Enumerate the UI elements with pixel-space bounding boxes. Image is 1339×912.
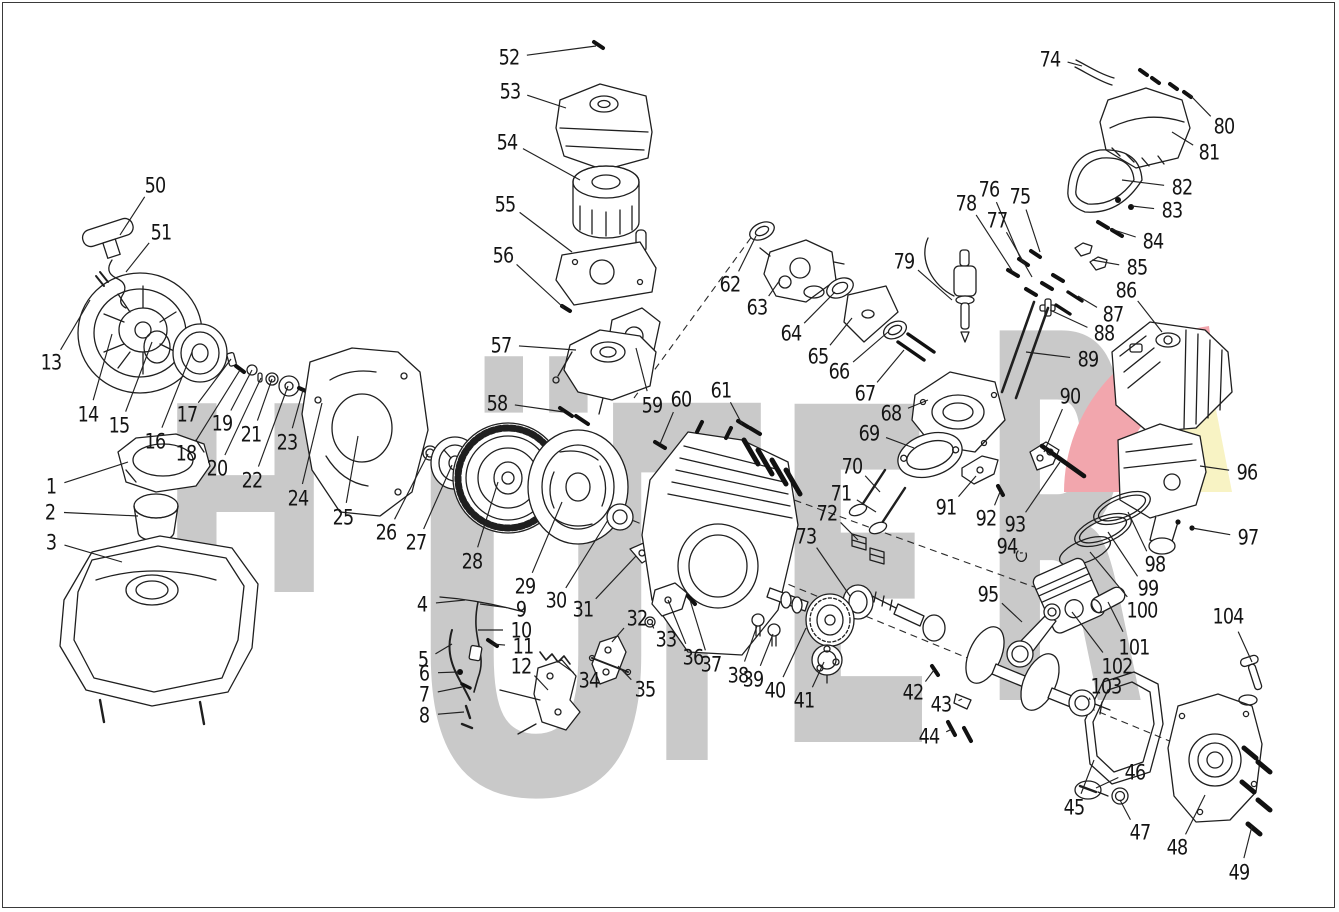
part-callout-47: 47 xyxy=(1130,819,1151,844)
fuel-tank xyxy=(60,536,258,724)
part-callout-82: 82 xyxy=(1172,174,1193,199)
part-callout-91: 91 xyxy=(936,494,957,519)
part-callout-88: 88 xyxy=(1094,320,1115,345)
seal-47 xyxy=(1112,788,1128,804)
part-callout-28: 28 xyxy=(462,548,483,573)
leader-line-6 xyxy=(438,672,458,673)
part-callout-33: 33 xyxy=(656,626,677,651)
part-callout-83: 83 xyxy=(1162,197,1183,222)
crankcase-cover xyxy=(1168,694,1262,822)
part-callout-18: 18 xyxy=(176,440,197,465)
leader-line-49 xyxy=(1244,826,1252,858)
dipstick-ring xyxy=(1239,695,1257,705)
part-callout-17: 17 xyxy=(177,401,198,426)
leader-line-52 xyxy=(527,46,596,55)
part-callout-80: 80 xyxy=(1214,113,1235,138)
air-filter-screw xyxy=(594,42,603,48)
part-callout-15: 15 xyxy=(109,412,130,437)
part-callout-27: 27 xyxy=(406,529,427,554)
part-callout-94: 94 xyxy=(997,533,1018,558)
leader-line-1 xyxy=(64,462,128,483)
part-callout-52: 52 xyxy=(499,44,520,69)
part-callout-46: 46 xyxy=(1125,759,1146,784)
leader-line-55 xyxy=(520,212,572,252)
part-callout-73: 73 xyxy=(796,523,817,548)
part-callout-4: 4 xyxy=(417,591,427,616)
part-callout-75: 75 xyxy=(1010,183,1031,208)
part-callout-54: 54 xyxy=(497,129,518,154)
parts-diagram-page: HÜTER xyxy=(0,0,1339,912)
part-callout-34: 34 xyxy=(579,667,600,692)
part-callout-12: 12 xyxy=(511,653,532,678)
part-callout-41: 41 xyxy=(794,687,815,712)
part-callout-89: 89 xyxy=(1078,346,1099,371)
part-callout-86: 86 xyxy=(1116,277,1137,302)
part-callout-21: 21 xyxy=(241,421,262,446)
leader-line-2 xyxy=(64,513,138,516)
part-callout-24: 24 xyxy=(288,485,309,510)
gasket-62 xyxy=(747,218,777,243)
part-callout-51: 51 xyxy=(151,219,172,244)
part-callout-32: 32 xyxy=(627,605,648,630)
part-callout-23: 23 xyxy=(277,429,298,454)
air-filter-element xyxy=(573,166,639,238)
part-callout-79: 79 xyxy=(894,248,915,273)
dots-83 xyxy=(1115,197,1134,210)
part-callout-39: 39 xyxy=(743,666,764,691)
part-callout-84: 84 xyxy=(1143,228,1164,253)
part-callout-70: 70 xyxy=(842,453,863,478)
main-bearing xyxy=(607,504,633,530)
part-callout-14: 14 xyxy=(78,401,99,426)
leader-line-56 xyxy=(517,264,564,308)
dipstick xyxy=(1240,654,1268,692)
part-callout-95: 95 xyxy=(978,581,999,606)
part-callout-64: 64 xyxy=(781,320,802,345)
woodruff-key xyxy=(954,694,971,709)
part-callout-65: 65 xyxy=(808,343,829,368)
part-callout-58: 58 xyxy=(487,390,508,415)
part-callout-103: 103 xyxy=(1091,673,1122,698)
leader-line-80 xyxy=(1190,95,1211,116)
part-callout-72: 72 xyxy=(817,500,838,525)
leader-line-83 xyxy=(1132,206,1154,209)
part-callout-1: 1 xyxy=(46,473,56,498)
part-callout-56: 56 xyxy=(493,242,514,267)
bolts-44 xyxy=(948,722,971,741)
part-callout-30: 30 xyxy=(546,587,567,612)
part-callout-20: 20 xyxy=(207,455,228,480)
leader-line-62 xyxy=(739,236,756,271)
rope-pulley xyxy=(173,324,227,382)
leader-line-57 xyxy=(519,346,576,350)
part-callout-16: 16 xyxy=(145,428,166,453)
part-callout-43: 43 xyxy=(931,691,952,716)
part-callout-29: 29 xyxy=(515,573,536,598)
part-callout-78: 78 xyxy=(956,190,977,215)
part-callout-97: 97 xyxy=(1238,524,1259,549)
part-callout-66: 66 xyxy=(829,358,850,383)
part-callout-67: 67 xyxy=(855,380,876,405)
part-callout-19: 19 xyxy=(212,410,233,435)
breather-tube xyxy=(1075,60,1114,85)
part-callout-22: 22 xyxy=(242,467,263,492)
part-callout-35: 35 xyxy=(635,676,656,701)
part-callout-60: 60 xyxy=(671,386,692,411)
part-callout-63: 63 xyxy=(747,294,768,319)
part-callout-48: 48 xyxy=(1167,834,1188,859)
part-callout-62: 62 xyxy=(720,271,741,296)
air-filter-cover xyxy=(556,84,652,170)
part-callout-90: 90 xyxy=(1060,383,1081,408)
part-callout-81: 81 xyxy=(1199,139,1220,164)
part-callout-100: 100 xyxy=(1127,597,1158,622)
leader-line-97 xyxy=(1192,528,1230,535)
part-callout-74: 74 xyxy=(1040,46,1061,71)
part-callout-50: 50 xyxy=(145,172,166,197)
starter-handle xyxy=(80,216,140,263)
part-callout-55: 55 xyxy=(495,191,516,216)
part-callout-45: 45 xyxy=(1064,794,1085,819)
part-callout-8: 8 xyxy=(419,702,429,727)
air-filter-base xyxy=(556,230,656,305)
part-callout-59: 59 xyxy=(642,392,663,417)
part-callout-25: 25 xyxy=(333,504,354,529)
part-callout-77: 77 xyxy=(987,207,1008,232)
muffler-bolts-97 xyxy=(1175,519,1194,530)
part-callout-26: 26 xyxy=(376,519,397,544)
part-callout-37: 37 xyxy=(701,651,722,676)
part-callout-42: 42 xyxy=(903,679,924,704)
leader-line-51 xyxy=(126,243,149,272)
part-callout-13: 13 xyxy=(41,349,62,374)
part-callout-57: 57 xyxy=(491,332,512,357)
part-callout-98: 98 xyxy=(1145,551,1166,576)
part-callout-104: 104 xyxy=(1213,603,1244,628)
part-callout-92: 92 xyxy=(976,505,997,530)
part-callout-49: 49 xyxy=(1229,859,1250,884)
part-callout-61: 61 xyxy=(711,377,732,402)
part-callout-53: 53 xyxy=(500,78,521,103)
part-callout-31: 31 xyxy=(573,596,594,621)
part-callout-76: 76 xyxy=(979,176,1000,201)
part-callout-40: 40 xyxy=(765,677,786,702)
part-callout-96: 96 xyxy=(1237,459,1258,484)
part-callout-3: 3 xyxy=(46,529,56,554)
leader-line-79 xyxy=(918,270,952,300)
part-callout-2: 2 xyxy=(45,499,55,524)
part-callout-69: 69 xyxy=(859,420,880,445)
leader-line-82 xyxy=(1122,180,1164,185)
part-callout-44: 44 xyxy=(919,723,940,748)
part-callout-68: 68 xyxy=(881,400,902,425)
valve-cover xyxy=(1100,88,1190,168)
part-callout-85: 85 xyxy=(1127,254,1148,279)
